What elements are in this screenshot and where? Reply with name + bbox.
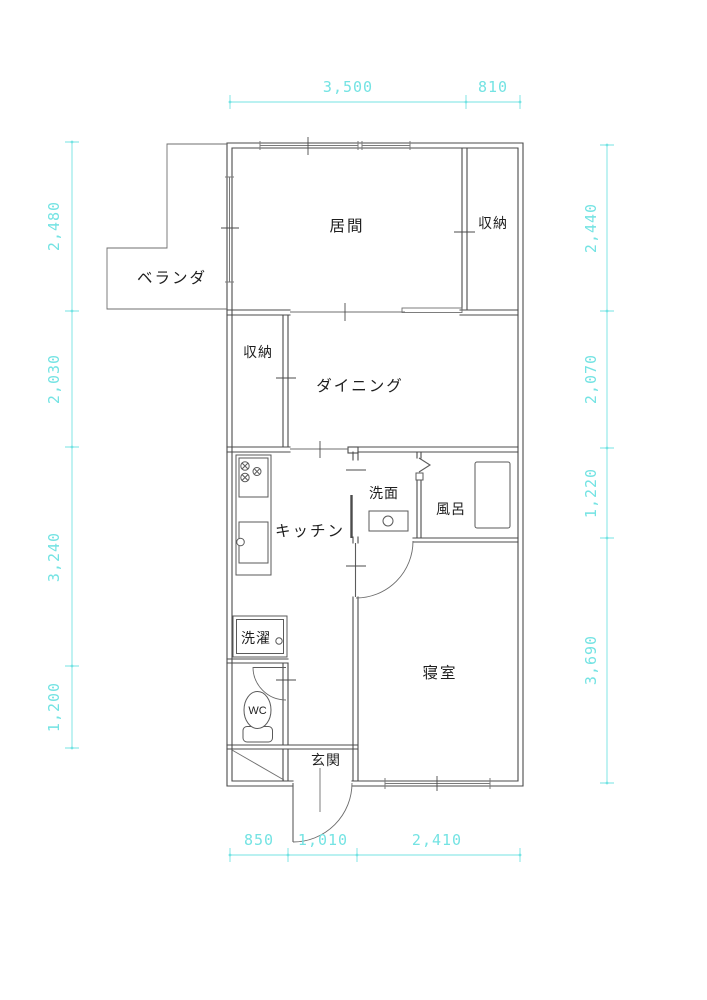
bath-fixtures	[475, 462, 510, 528]
kitchen-faucet-icon	[237, 538, 245, 546]
dim-label-bottom-1010: 1,010	[298, 831, 348, 849]
room-label-wc: WC	[248, 705, 266, 717]
room-label-closet-upper: 収納	[478, 215, 508, 231]
dimension-bottom: 850 1,010 2,410	[229, 831, 522, 862]
washroom-fixtures	[369, 511, 408, 531]
dim-label-right-2070: 2,070	[582, 354, 600, 404]
bedroom-window	[385, 776, 490, 791]
dimension-left: 2,480 2,030 3,240 1,200	[45, 141, 79, 750]
room-label-kitchen: キッチン	[275, 523, 345, 540]
dim-label-right-1220: 1,220	[582, 468, 600, 518]
floor-plan-page: 3,500 810 850 1,010 2,410 2,480 2,030 3,…	[0, 0, 707, 1000]
room-label-closet-lower: 収納	[243, 344, 273, 360]
dim-label-left-2480: 2,480	[45, 201, 63, 251]
dimension-right: 2,440 2,070 1,220 3,690	[582, 144, 614, 785]
kitchen-opening	[290, 441, 348, 458]
room-labels: 居間 収納 ベランダ 収納 ダイニング キッチン 洗面 風呂 洗濯 WC 玄関 …	[137, 215, 508, 768]
living-sliding-door	[290, 303, 462, 321]
room-label-laundry: 洗濯	[241, 630, 271, 646]
washbasin-drain-icon	[383, 516, 393, 526]
dimension-top: 3,500 810	[229, 78, 522, 109]
dim-label-left-2030: 2,030	[45, 354, 63, 404]
dim-label-right-3690: 3,690	[582, 635, 600, 685]
laundry-knob-icon	[276, 638, 282, 644]
dim-label-left-3240: 3,240	[45, 532, 63, 582]
room-label-dining: ダイニング	[316, 377, 404, 395]
room-label-bath: 風呂	[436, 501, 466, 517]
kitchen-fixtures	[236, 455, 271, 575]
dim-label-left-1200: 1,200	[45, 682, 63, 732]
dim-label-bottom-850: 850	[244, 831, 274, 849]
floor-plan-drawing: 3,500 810 850 1,010 2,410 2,480 2,030 3,…	[0, 0, 707, 1000]
washbasin-icon	[369, 511, 408, 531]
wall-tick-marks	[276, 232, 475, 680]
stove-burner-icon	[241, 462, 261, 482]
shoe-cabinet-diagonal	[232, 750, 284, 780]
room-label-bedroom: 寝室	[422, 663, 457, 682]
dim-label-bottom-2410: 2,410	[412, 831, 462, 849]
dim-label-top-810: 810	[478, 78, 508, 96]
bedroom-door	[356, 541, 414, 598]
room-label-veranda: ベランダ	[137, 269, 207, 287]
room-label-washroom: 洗面	[369, 485, 399, 501]
bathtub-icon	[475, 462, 510, 528]
living-top-window	[260, 137, 410, 155]
bath-folding-door	[416, 458, 430, 480]
room-label-living: 居間	[329, 218, 364, 235]
veranda-window	[221, 177, 239, 282]
room-label-entrance: 玄関	[311, 752, 341, 768]
dim-label-top-3500: 3,500	[323, 78, 373, 96]
dim-label-right-2440: 2,440	[582, 203, 600, 253]
